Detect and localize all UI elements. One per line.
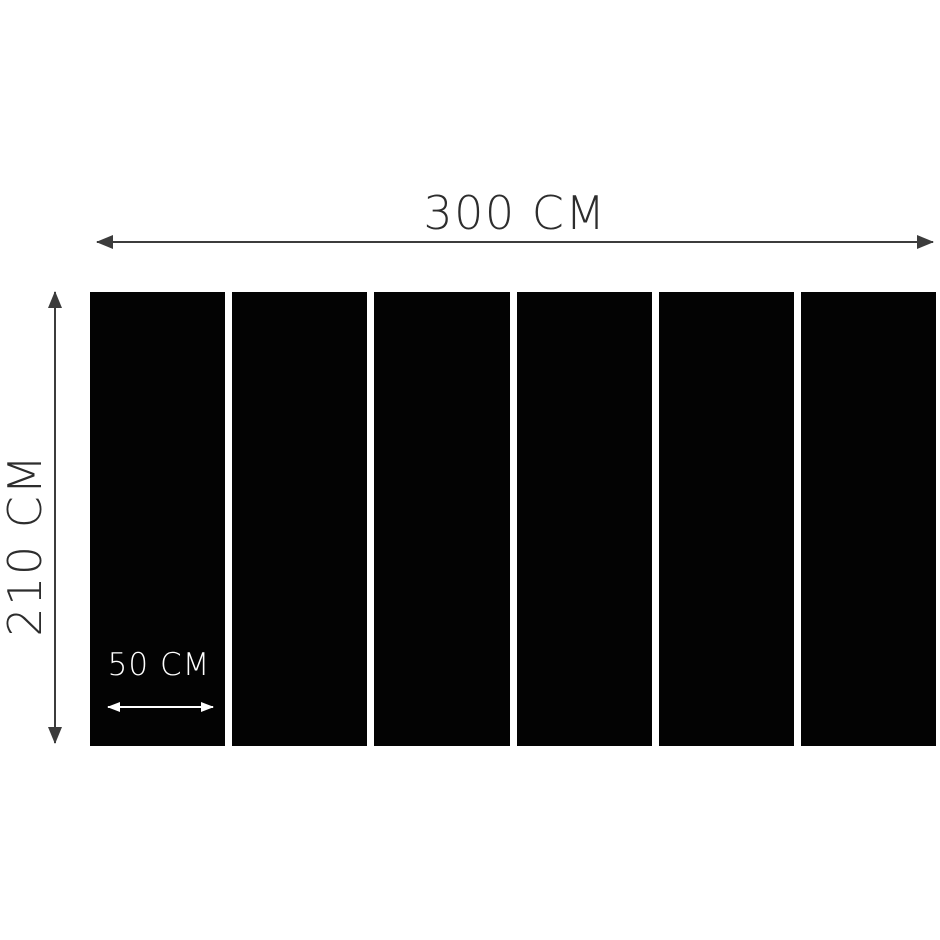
dimension-diagram: 300 CM 210 CM 50 CM — [0, 0, 940, 940]
height-label: 210 CM — [2, 395, 48, 695]
panel-5 — [659, 292, 794, 746]
panel-2 — [232, 292, 367, 746]
panel-width-dimension-arrow-icon — [108, 706, 213, 708]
panel-4 — [517, 292, 652, 746]
total-width-label: 300 CM — [97, 190, 933, 236]
height-dimension-arrow-icon — [54, 292, 56, 743]
width-dimension-arrow-icon — [97, 241, 933, 243]
panel-width-label: 50 CM — [90, 650, 228, 681]
panel-6 — [801, 292, 936, 746]
panel-3 — [374, 292, 509, 746]
